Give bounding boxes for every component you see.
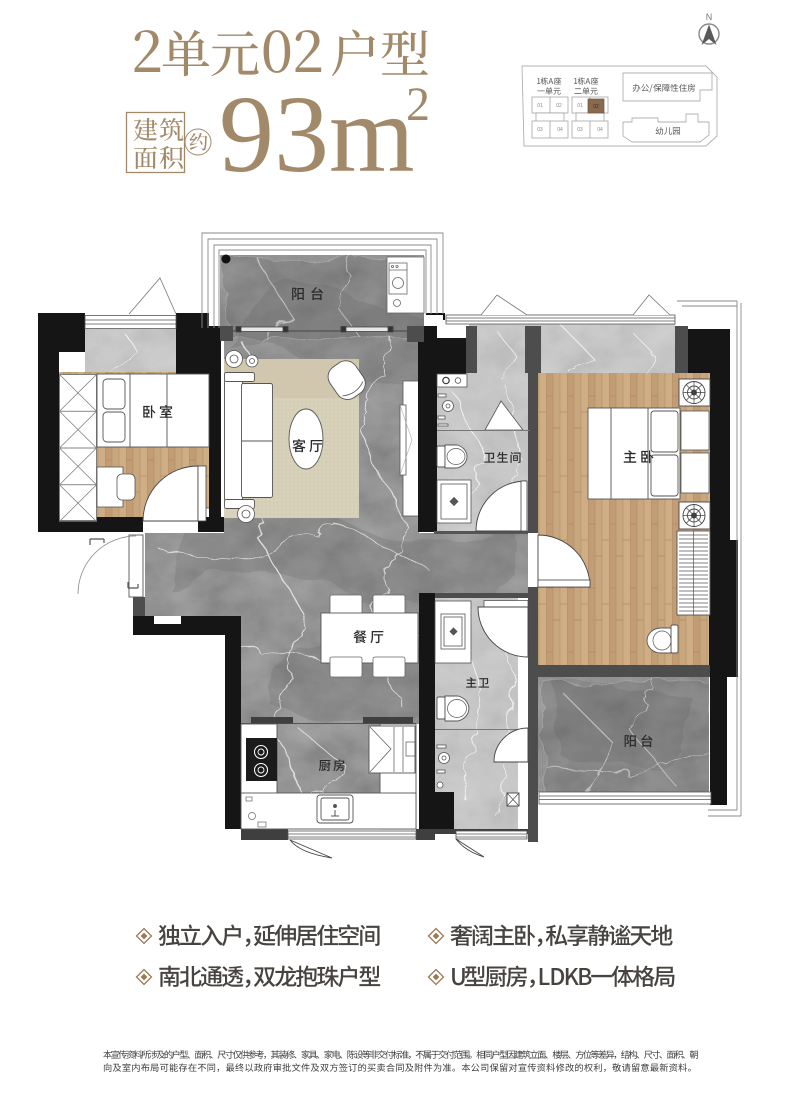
- svg-text:04: 04: [597, 127, 603, 133]
- svg-text:02: 02: [556, 103, 562, 109]
- svg-text:03: 03: [577, 127, 583, 133]
- svg-text:02: 02: [593, 104, 599, 110]
- svg-text:2: 2: [406, 78, 430, 131]
- svg-text:N: N: [706, 12, 713, 22]
- svg-text:03: 03: [537, 127, 543, 133]
- svg-text:04: 04: [557, 127, 563, 133]
- svg-text:93m: 93m: [219, 73, 415, 195]
- svg-text:01: 01: [577, 103, 583, 109]
- svg-text:01: 01: [537, 103, 543, 109]
